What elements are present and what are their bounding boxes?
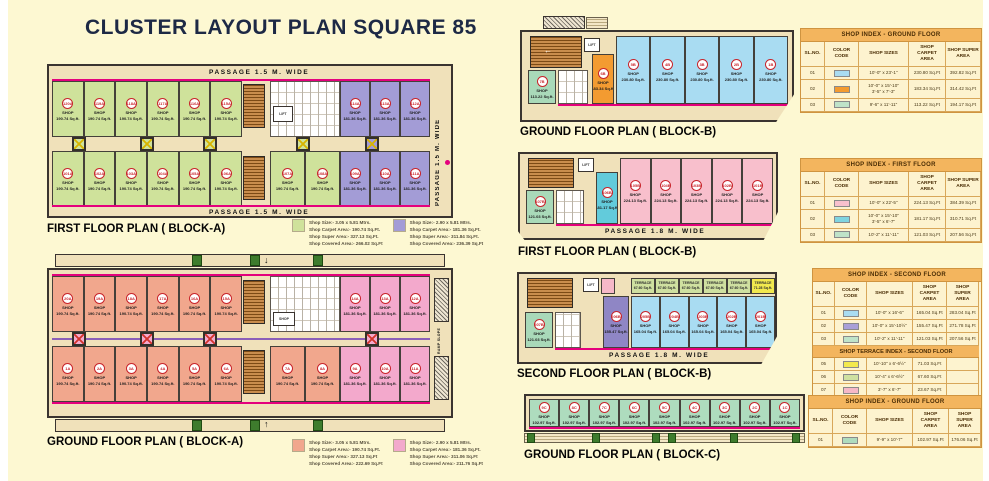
shop-word: SHOP bbox=[317, 375, 328, 380]
shop-cell-3c: 3CSHOP102.97 Sq.ft. bbox=[710, 399, 740, 427]
color-swatch bbox=[843, 310, 859, 317]
table-cell-super: 176.06 Sq.Ft bbox=[949, 434, 981, 447]
shop-cell-14a: 14ASHOP181.36 Sq.ft. bbox=[340, 276, 370, 332]
shop-word: SHOP bbox=[221, 110, 232, 115]
entry-steps bbox=[524, 433, 805, 443]
ground-floor-plan-block-c: 9CSHOP102.97 Sq.ft.8CSHOP102.97 Sq.ft.7C… bbox=[524, 394, 805, 432]
shop-area: 181.36 Sq.ft. bbox=[373, 116, 396, 121]
shop-cell-8c: 8CSHOP102.97 Sq.ft. bbox=[559, 399, 589, 427]
tree-icon bbox=[527, 433, 535, 443]
shop-cell-2c: 2CSHOP102.97 Sq.ft. bbox=[740, 399, 770, 427]
table-cell-carpet: 230.80 Sq.Ft bbox=[909, 67, 946, 80]
shop-area: 181.36 Sq.ft. bbox=[403, 311, 426, 316]
shop-area: 190.74 Sq.ft. bbox=[56, 311, 79, 316]
shop-number-badge: 4A bbox=[157, 363, 168, 374]
passage-label: PASSAGE 1.8 M. WIDE bbox=[609, 352, 709, 359]
shop-area: 190.74 Sq.ft. bbox=[88, 381, 111, 386]
second-floor-plan-block-b: 207BSHOP121.03 Sq.ft. LIFT 206BSHOP155.4… bbox=[517, 272, 777, 364]
table-cell-slno: 02 bbox=[801, 210, 825, 228]
shop-area: 102.97 Sq.ft. bbox=[653, 420, 676, 425]
toilet-area bbox=[555, 312, 581, 348]
shop-number-badge: 102A bbox=[94, 168, 105, 179]
shop-number-badge: 206B bbox=[611, 311, 622, 322]
shop-area: 165.04 Sq.ft. bbox=[663, 329, 686, 334]
color-swatch bbox=[843, 323, 859, 330]
staircase bbox=[243, 350, 265, 394]
table-cell-super: 207.56 Sq.Ft bbox=[947, 333, 979, 346]
passage-label-side: PASSAGE 1.5 M. WIDE bbox=[435, 96, 441, 206]
shop-area: 165.04 Sq.ft. bbox=[691, 329, 714, 334]
table-cell-colorcode bbox=[825, 197, 859, 210]
shop-area: 102.97 Sq.ft. bbox=[773, 420, 796, 425]
second-floor-plan-block-b-label: SECOND FLOOR PLAN ( BLOCK-B) bbox=[517, 368, 711, 380]
passage-label: PASSAGE 1.8 M. WIDE bbox=[605, 228, 705, 235]
lift-box: LIFT bbox=[578, 158, 594, 172]
shop-cell-7b: 7BSHOP113.22 Sq.ft. bbox=[528, 70, 556, 104]
stair-arrow-icon: ← bbox=[544, 47, 552, 55]
shop-area: 224.13 Sq.ft. bbox=[685, 198, 708, 203]
legend-item: Shop Size:- 2.90 x 5.81 Mtrs.Shop Carpet… bbox=[393, 439, 483, 467]
legend-text: Shop Size:- 3.05 x 5.81 Mtrs.Shop Carpet… bbox=[309, 439, 383, 467]
shop-number-badge: 104A bbox=[157, 168, 168, 179]
entry-arrow-icon: ↓ bbox=[264, 256, 269, 265]
shop-cell-6a: 6ASHOP190.74 Sq.ft. bbox=[210, 346, 242, 402]
shop-area: 190.74 Sq.ft. bbox=[88, 116, 111, 121]
tree-icon bbox=[668, 433, 676, 443]
terrace-row: TERRACE67.60 Sq.ft.TERRACE67.60 Sq.ft.TE… bbox=[631, 278, 775, 294]
table-header-cell: SHOP SUPER AREA bbox=[946, 42, 981, 67]
passage-label-bottom: PASSAGE 1.5 M. WIDE bbox=[209, 209, 309, 216]
storefront-line bbox=[52, 402, 430, 404]
table-cell-super: 194.17 Sq.Ft bbox=[946, 99, 981, 112]
shop-number-badge: 106B bbox=[602, 187, 613, 198]
shop-row-green-top: 120ASHOP190.74 Sq.ft.119ASHOP190.74 Sq.f… bbox=[52, 81, 242, 137]
shop-cell-206b: 206BSHOP155.47 Sq.ft. bbox=[603, 296, 629, 348]
shop-area: 190.74 Sq.ft. bbox=[311, 186, 334, 191]
table-cell-colorcode bbox=[825, 67, 859, 80]
shop-word: SHOP bbox=[691, 192, 702, 197]
legend-line: Shop Super Area:- 311.84 Sq.Ft. bbox=[410, 233, 484, 240]
shop-cell-2b: 2BSHOP230.80 Sq.ft. bbox=[719, 36, 753, 104]
table-cell-super: 384.39 Sq.Ft bbox=[946, 197, 981, 210]
shop-number-badge: 6C bbox=[629, 402, 640, 413]
shop-area: 224.13 Sq.ft. bbox=[624, 198, 647, 203]
shop-area: 165.04 Sq.ft. bbox=[749, 329, 772, 334]
shop-word: SHOP bbox=[409, 110, 420, 115]
ramp-hatch bbox=[434, 356, 449, 400]
shop-cell-102a: 102ASHOP190.74 Sq.ft. bbox=[84, 151, 116, 207]
shop-cell-108a: 108ASHOP190.74 Sq.ft. bbox=[305, 151, 340, 207]
shop-cell-103b: 103BSHOP224.13 Sq.ft. bbox=[681, 158, 712, 224]
shop-number-badge: 3B bbox=[697, 59, 708, 70]
shop-number-badge: 111A bbox=[410, 168, 421, 179]
shop-area: 121.03 Sq.ft. bbox=[528, 214, 551, 219]
shop-cell-202b: 202BSHOP165.04 Sq.ft. bbox=[717, 296, 746, 348]
shop-area: 190.74 Sq.ft. bbox=[120, 116, 143, 121]
legend-line: Shop Carpet Area:- 181.36 Sq.Ft. bbox=[410, 446, 483, 453]
shop-number-badge: 114A bbox=[350, 98, 361, 109]
entry-steps bbox=[586, 17, 608, 29]
shop-number-badge: 7A bbox=[282, 363, 293, 374]
shop-word: SHOP bbox=[779, 414, 790, 419]
shop-207b: 207BSHOP121.03 Sq.ft. bbox=[525, 312, 553, 348]
shop-word: SHOP bbox=[601, 199, 612, 204]
shop-area: 113.22 Sq.ft. bbox=[530, 94, 553, 99]
shop-area: 190.74 Sq.ft. bbox=[56, 116, 79, 121]
shop-word: SHOP bbox=[282, 375, 293, 380]
shop-word: SHOP bbox=[659, 414, 670, 419]
shop-number-badge: 7B bbox=[537, 76, 548, 87]
shop-number-badge: 103B bbox=[691, 180, 702, 191]
tree-icon bbox=[250, 255, 260, 266]
shop-word: SHOP bbox=[752, 192, 763, 197]
shop-word: SHOP bbox=[726, 323, 737, 328]
color-swatch bbox=[834, 231, 850, 238]
shop-area: 102.97 Sq.ft. bbox=[713, 420, 736, 425]
shop-cell-20a: 20ASHOP190.74 Sq.ft. bbox=[52, 276, 84, 332]
shop-cell-9a: 9ASHOP181.36 Sq.ft. bbox=[340, 346, 370, 402]
legend-swatch bbox=[393, 439, 406, 452]
shop-row-pink: 105BSHOP224.13 Sq.ft.104BSHOP224.13 Sq.f… bbox=[620, 158, 773, 224]
table-header-cell: SHOP SIZES bbox=[859, 42, 909, 67]
shop-area: 181.36 Sq.ft. bbox=[373, 186, 396, 191]
shop-number-badge: 1B bbox=[765, 59, 776, 70]
color-swatch bbox=[834, 101, 850, 108]
table-header-cell: COLOR CODE bbox=[825, 172, 859, 197]
ground-floor-plan-block-a: 20ASHOP190.74 Sq.ft.19ASHOP190.74 Sq.ft.… bbox=[47, 268, 453, 418]
table-title: SHOP INDEX - GROUND FLOOR bbox=[809, 396, 981, 409]
first-floor-plan-block-a-label: FIRST FLOOR PLAN ( BLOCK-A) bbox=[47, 223, 225, 235]
lift-box: LIFT bbox=[583, 278, 599, 292]
tree-icon bbox=[592, 433, 600, 443]
tree-icon bbox=[313, 255, 323, 266]
shop-number-badge: 113A bbox=[380, 98, 391, 109]
shop-area: 190.74 Sq.ft. bbox=[120, 186, 143, 191]
shop-area: 102.97 Sq.ft. bbox=[593, 420, 616, 425]
legend-line: Shop Size:- 2.90 x 5.81 Mtrs. bbox=[410, 219, 484, 226]
table-cell-slno: 01 bbox=[801, 67, 825, 80]
shop-cell-119a: 119ASHOP190.74 Sq.ft. bbox=[84, 81, 116, 137]
terrace-cell: TERRACE67.60 Sq.ft. bbox=[679, 278, 703, 294]
shop-number-badge: 5B bbox=[628, 59, 639, 70]
shop-area: 190.74 Sq.ft. bbox=[151, 116, 174, 121]
shop-cell-101b: 101BSHOP224.13 Sq.ft. bbox=[742, 158, 773, 224]
ground-floor-plan-block-c-label: GROUND FLOOR PLAN ( BLOCK-C) bbox=[524, 449, 720, 461]
shop-area: 190.74 Sq.ft. bbox=[88, 311, 111, 316]
terrace-cell: TERRACE71.28 Sq.ft. bbox=[751, 278, 775, 294]
shop-cell-8a: 8ASHOP190.74 Sq.ft. bbox=[305, 346, 340, 402]
shop-area: 190.74 Sq.ft. bbox=[276, 381, 299, 386]
shop-area: 102.97 Sq.ft. bbox=[562, 420, 585, 425]
page-title: CLUSTER LAYOUT PLAN SQUARE 85 bbox=[85, 16, 477, 40]
shop-number-badge: 8A bbox=[317, 363, 328, 374]
tree-icon bbox=[192, 255, 202, 266]
legend-text: Shop Size:- 2.90 x 5.81 Mtrs.Shop Carpet… bbox=[410, 219, 484, 247]
table-header-cell: SHOP SIZES bbox=[867, 282, 913, 307]
shop-number-badge: 120A bbox=[62, 98, 73, 109]
table-grid: SL.NO.COLOR CODESHOP SIZESSHOP CARPET AR… bbox=[809, 409, 981, 447]
shop-number-badge: 8C bbox=[569, 402, 580, 413]
shop-number-badge: 107A bbox=[282, 168, 293, 179]
shop-cell-102b: 102BSHOP224.13 Sq.ft. bbox=[712, 158, 743, 224]
shop-cell-12a: 12ASHOP181.36 Sq.ft. bbox=[400, 276, 430, 332]
shop-word: SHOP bbox=[599, 414, 610, 419]
shop-area: 230.80 Sq.ft. bbox=[656, 77, 679, 82]
shop-word: SHOP bbox=[94, 305, 105, 310]
shop-number-badge: 19A bbox=[94, 293, 105, 304]
table-header-cell: SL.NO. bbox=[801, 42, 825, 67]
terrace-small-pink bbox=[601, 278, 615, 294]
shop-word: SHOP bbox=[660, 192, 671, 197]
table-cell-carpet: 155.47 Sq.Ft bbox=[913, 320, 947, 333]
shop-cell-106a: 106ASHOP190.74 Sq.ft. bbox=[210, 151, 242, 207]
shop-word: SHOP bbox=[126, 110, 137, 115]
shop-word: SHOP bbox=[189, 375, 200, 380]
shop-cell-105a: 105ASHOP190.74 Sq.ft. bbox=[179, 151, 211, 207]
shop-cell-19a: 19ASHOP190.74 Sq.ft. bbox=[84, 276, 116, 332]
table-title: SHOP INDEX - FIRST FLOOR bbox=[801, 159, 981, 172]
table-cell-carpet: 71.03 Sq.Ft bbox=[913, 358, 947, 371]
shop-number-badge: 5C bbox=[659, 402, 670, 413]
shop-area: 190.74 Sq.ft. bbox=[215, 311, 238, 316]
shop-area: 190.74 Sq.ft. bbox=[183, 311, 206, 316]
shop-cell-13a: 13ASHOP181.36 Sq.ft. bbox=[370, 276, 400, 332]
table-cell-size: 10'-0" x 16'-6" bbox=[867, 307, 913, 320]
legend-line: Shop Carpet Area:- 190.74 Sq.Ft. bbox=[309, 226, 383, 233]
shop-cell-203b: 203BSHOP165.04 Sq.ft. bbox=[689, 296, 718, 348]
entry-arrow-icon: ↑ bbox=[264, 420, 269, 429]
shop-cell-3b: 3BSHOP230.80 Sq.ft. bbox=[685, 36, 719, 104]
shop-word: SHOP bbox=[317, 180, 328, 185]
table-cell-colorcode bbox=[835, 371, 867, 384]
shop-cell-118a: 118ASHOP190.74 Sq.ft. bbox=[115, 81, 147, 137]
shop-word: SHOP bbox=[533, 331, 544, 336]
ramp-slope-label: RAMP SLOPE bbox=[437, 324, 441, 354]
tree-icon bbox=[730, 433, 738, 443]
shop-word: SHOP bbox=[349, 375, 360, 380]
legend-line: Shop Super Area:- 327.13 Sq.Ft. bbox=[309, 233, 383, 240]
legend-first-floor-a: Shop Size:- 3.05 x 5.81 Mtrs.Shop Carpet… bbox=[292, 219, 483, 247]
legend-line: Shop Size:- 2.90 x 5.81 Mtrs. bbox=[410, 439, 483, 446]
shop-word: SHOP bbox=[630, 192, 641, 197]
shop-area: 165.04 Sq.ft. bbox=[720, 329, 743, 334]
shop-area: 181.36 Sq.ft. bbox=[343, 381, 366, 386]
table-cell-super: 283.04 Sq.Ft bbox=[947, 307, 979, 320]
shop-row-blue: 205BSHOP165.04 Sq.ft.204BSHOP165.04 Sq.f… bbox=[631, 296, 775, 348]
shop-cell-1b: 1BSHOP230.80 Sq.ft. bbox=[754, 36, 788, 104]
legend-line: Shop Super Area:- 327.13 Sq.Ft bbox=[309, 453, 383, 460]
passage-label-top: PASSAGE 1.5 M. WIDE bbox=[209, 69, 309, 76]
shop-area: 230.80 Sq.ft. bbox=[759, 77, 782, 82]
table-header-cell: SHOP CARPET AREA bbox=[909, 42, 946, 67]
shop-107b: 107BSHOP121.03 Sq.ft. bbox=[526, 190, 554, 224]
shop-cell-107b: 107BSHOP121.03 Sq.ft. bbox=[526, 190, 554, 224]
shop-area: 102.97 Sq.ft. bbox=[532, 420, 555, 425]
ramp-hatch bbox=[543, 16, 585, 29]
staircase bbox=[530, 36, 582, 68]
shop-number-badge: 5A bbox=[189, 363, 200, 374]
staircase bbox=[243, 84, 265, 128]
shop-word: SHOP bbox=[379, 375, 390, 380]
legend-line: Shop Carpet Area:- 181.36 Sq.Ft. bbox=[410, 226, 484, 233]
shop-word: SHOP bbox=[538, 414, 549, 419]
shop-area: 230.80 Sq.ft. bbox=[690, 77, 713, 82]
shop-number-badge: 11A bbox=[410, 363, 421, 374]
shop-cell-205b: 205BSHOP165.04 Sq.ft. bbox=[631, 296, 660, 348]
shop-cell-17a: 17ASHOP190.74 Sq.ft. bbox=[147, 276, 179, 332]
table-header-cell: SHOP SUPER AREA bbox=[947, 282, 979, 307]
shop-row-green-bottom: 101ASHOP190.74 Sq.ft.102ASHOP190.74 Sq.f… bbox=[52, 151, 242, 207]
small-shop-box: SHOP bbox=[273, 312, 295, 326]
ground-floor-plan-block-b: ← 7BSHOP113.22 Sq.ft. LIFT 6BSHOP183.34 … bbox=[520, 30, 794, 122]
color-swatch bbox=[834, 86, 850, 93]
shop-number-badge: 4C bbox=[689, 402, 700, 413]
shop-word: SHOP bbox=[349, 305, 360, 310]
legend-swatch bbox=[292, 439, 305, 452]
shop-word: SHOP bbox=[189, 305, 200, 310]
shop-number-badge: 1C bbox=[779, 402, 790, 413]
shop-area: 190.74 Sq.ft. bbox=[151, 381, 174, 386]
shop-number-badge: 119A bbox=[94, 98, 105, 109]
shop-number-badge: 107B bbox=[535, 196, 546, 207]
shop-word: SHOP bbox=[221, 180, 232, 185]
ramp-hatch bbox=[434, 278, 449, 322]
legend-item: Shop Size:- 2.90 x 5.81 Mtrs.Shop Carpet… bbox=[393, 219, 484, 247]
legend-line: Shop Super Area:- 311.06 Sq.Ft bbox=[410, 453, 483, 460]
table-header-cell: COLOR CODE bbox=[835, 282, 867, 307]
table-subheader: SHOP TERRACE INDEX - SECOND FLOOR bbox=[813, 346, 979, 358]
shop-word: SHOP bbox=[696, 71, 707, 76]
red-marker-dot bbox=[445, 160, 450, 165]
shop-area: 181.36 Sq.ft. bbox=[343, 186, 366, 191]
shop-row-pink-top: 14ASHOP181.36 Sq.ft.13ASHOP181.36 Sq.ft.… bbox=[340, 276, 430, 332]
table-cell-colorcode bbox=[825, 229, 859, 242]
shop-area: 102.97 Sq.ft. bbox=[743, 420, 766, 425]
shop-area: 181.36 Sq.ft. bbox=[403, 116, 426, 121]
shop-cell-207b: 207BSHOP121.03 Sq.ft. bbox=[525, 312, 553, 348]
shop-area: 121.03 Sq.ft. bbox=[527, 337, 550, 342]
shop-number-badge: 2B bbox=[731, 59, 742, 70]
table-cell-size: 10'-0" x 15'-10" 3'-5" x 7'-3" bbox=[859, 80, 909, 98]
shop-number-badge: 106A bbox=[221, 168, 232, 179]
shop-area: 190.74 Sq.ft. bbox=[215, 186, 238, 191]
shop-number-badge: 205B bbox=[640, 311, 651, 322]
shop-word: SHOP bbox=[221, 375, 232, 380]
shop-word: SHOP bbox=[157, 180, 168, 185]
shop-cell-104b: 104BSHOP224.13 Sq.ft. bbox=[651, 158, 682, 224]
shop-number-badge: 105B bbox=[630, 180, 641, 191]
shop-word: SHOP bbox=[568, 414, 579, 419]
shop-cell-115a: 115ASHOP190.74 Sq.ft. bbox=[210, 81, 242, 137]
shop-word: SHOP bbox=[126, 180, 137, 185]
legend-text: Shop Size:- 2.90 x 5.81 Mtrs.Shop Carpet… bbox=[410, 439, 483, 467]
table-cell-size: 10'-0" x 15'-10" 3'-5" x 6'-7" bbox=[859, 210, 909, 228]
shop-row-salmon-mid: 7ASHOP190.74 Sq.ft.8ASHOP190.74 Sq.ft. bbox=[270, 346, 340, 402]
shop-number-badge: 104B bbox=[660, 180, 671, 191]
table-cell-slno: 06 bbox=[813, 371, 835, 384]
shop-area: 190.74 Sq.ft. bbox=[88, 186, 111, 191]
table-cell-slno: 03 bbox=[801, 99, 825, 112]
shop-cell-117a: 117ASHOP190.74 Sq.ft. bbox=[147, 81, 179, 137]
shop-number-badge: 6B bbox=[598, 68, 609, 79]
shop-row-purple-bottom: 109ASHOP181.36 Sq.ft.110ASHOP181.36 Sq.f… bbox=[340, 151, 430, 207]
shop-cell-7c: 7CSHOP102.97 Sq.ft. bbox=[589, 399, 619, 427]
shop-number-badge: 105A bbox=[189, 168, 200, 179]
shop-area: 190.74 Sq.ft. bbox=[56, 186, 79, 191]
shop-cell-101a: 101ASHOP190.74 Sq.ft. bbox=[52, 151, 84, 207]
shop-word: SHOP bbox=[628, 71, 639, 76]
table-cell-carpet: 102.97 Sq.Ft bbox=[913, 434, 949, 447]
shop-word: SHOP bbox=[189, 180, 200, 185]
lift-x-box bbox=[72, 137, 86, 151]
shop-cell-6c: 6CSHOP102.97 Sq.ft. bbox=[619, 399, 649, 427]
shop-area: 181.36 Sq.ft. bbox=[373, 381, 396, 386]
legend-item: Shop Size:- 3.05 x 5.81 Mtrs.Shop Carpet… bbox=[292, 439, 383, 467]
legend-swatch bbox=[292, 219, 305, 232]
table-cell-size: 10'-0" x 15'-10½" bbox=[867, 320, 913, 333]
table-cell-colorcode bbox=[825, 99, 859, 112]
table-cell-super: 314.42 Sq.Ft bbox=[946, 80, 981, 98]
shop-word: SHOP bbox=[94, 375, 105, 380]
shop-number-badge: 12A bbox=[410, 293, 421, 304]
shop-word: SHOP bbox=[94, 180, 105, 185]
shop-number-badge: 2A bbox=[94, 363, 105, 374]
table-cell-colorcode bbox=[825, 210, 859, 228]
shop-number-badge: 3C bbox=[719, 402, 730, 413]
shop-index-second-floor-table: SHOP INDEX - SECOND FLOORSL.NO.COLOR COD… bbox=[812, 268, 982, 398]
table-header-cell: SL.NO. bbox=[813, 282, 835, 307]
table-cell-carpet: 113.22 Sq.Ft bbox=[909, 99, 946, 112]
table-cell-size: 10'-0" x 22'-5" bbox=[859, 197, 909, 210]
table-header-cell: SHOP SUPER AREA bbox=[946, 172, 981, 197]
table-grid: SL.NO.COLOR CODESHOP SIZESSHOP CARPET AR… bbox=[813, 282, 981, 397]
shop-cell-4a: 4ASHOP190.74 Sq.ft. bbox=[147, 346, 179, 402]
shop-number-badge: 2C bbox=[749, 402, 760, 413]
shop-index-ground-floor-block-c-table: SHOP INDEX - GROUND FLOORSL.NO.COLOR COD… bbox=[808, 395, 982, 448]
storefront-line bbox=[558, 104, 788, 106]
shop-cell-5c: 5CSHOP102.97 Sq.ft. bbox=[649, 399, 679, 427]
shop-number-badge: 101A bbox=[62, 168, 73, 179]
tree-icon bbox=[792, 433, 800, 443]
shop-cell-113a: 113ASHOP181.36 Sq.ft. bbox=[370, 81, 400, 137]
shop-number-badge: 20A bbox=[62, 293, 73, 304]
shop-cell-5a: 5ASHOP190.74 Sq.ft. bbox=[179, 346, 211, 402]
shop-number-badge: 15A bbox=[221, 293, 232, 304]
shop-cell-109a: 109ASHOP181.36 Sq.ft. bbox=[340, 151, 370, 207]
tree-icon bbox=[192, 420, 202, 431]
shop-word: SHOP bbox=[126, 305, 137, 310]
shop-number-badge: 118A bbox=[126, 98, 137, 109]
shop-cell-7a: 7ASHOP190.74 Sq.ft. bbox=[270, 346, 305, 402]
storefront-line bbox=[52, 205, 430, 207]
terrace-cell: TERRACE67.60 Sq.ft. bbox=[703, 278, 727, 294]
table-header-cell: SHOP SIZES bbox=[867, 409, 913, 434]
first-floor-plan-block-a: PASSAGE 1.5 M. WIDE 120ASHOP190.74 Sq.ft… bbox=[47, 64, 453, 218]
shop-word: SHOP bbox=[379, 110, 390, 115]
table-header-cell: COLOR CODE bbox=[833, 409, 867, 434]
shop-word: SHOP bbox=[719, 414, 730, 419]
shop-area: 183.34 Sq.ft. bbox=[592, 86, 614, 91]
table-cell-size: 9'-6" x 11'-11" bbox=[859, 99, 909, 112]
shop-number-badge: 10A bbox=[380, 363, 391, 374]
shop-area: 190.74 Sq.ft. bbox=[120, 311, 143, 316]
shop-area: 190.74 Sq.ft. bbox=[215, 381, 238, 386]
shop-word: SHOP bbox=[126, 375, 137, 380]
shop-cell-2a: 2ASHOP190.74 Sq.ft. bbox=[84, 346, 116, 402]
table-cell-carpet: 67.60 Sq.Ft bbox=[913, 371, 947, 384]
table-cell-size: 10'-2" x 11'-11" bbox=[867, 333, 913, 346]
shop-area: 190.74 Sq.ft. bbox=[183, 381, 206, 386]
